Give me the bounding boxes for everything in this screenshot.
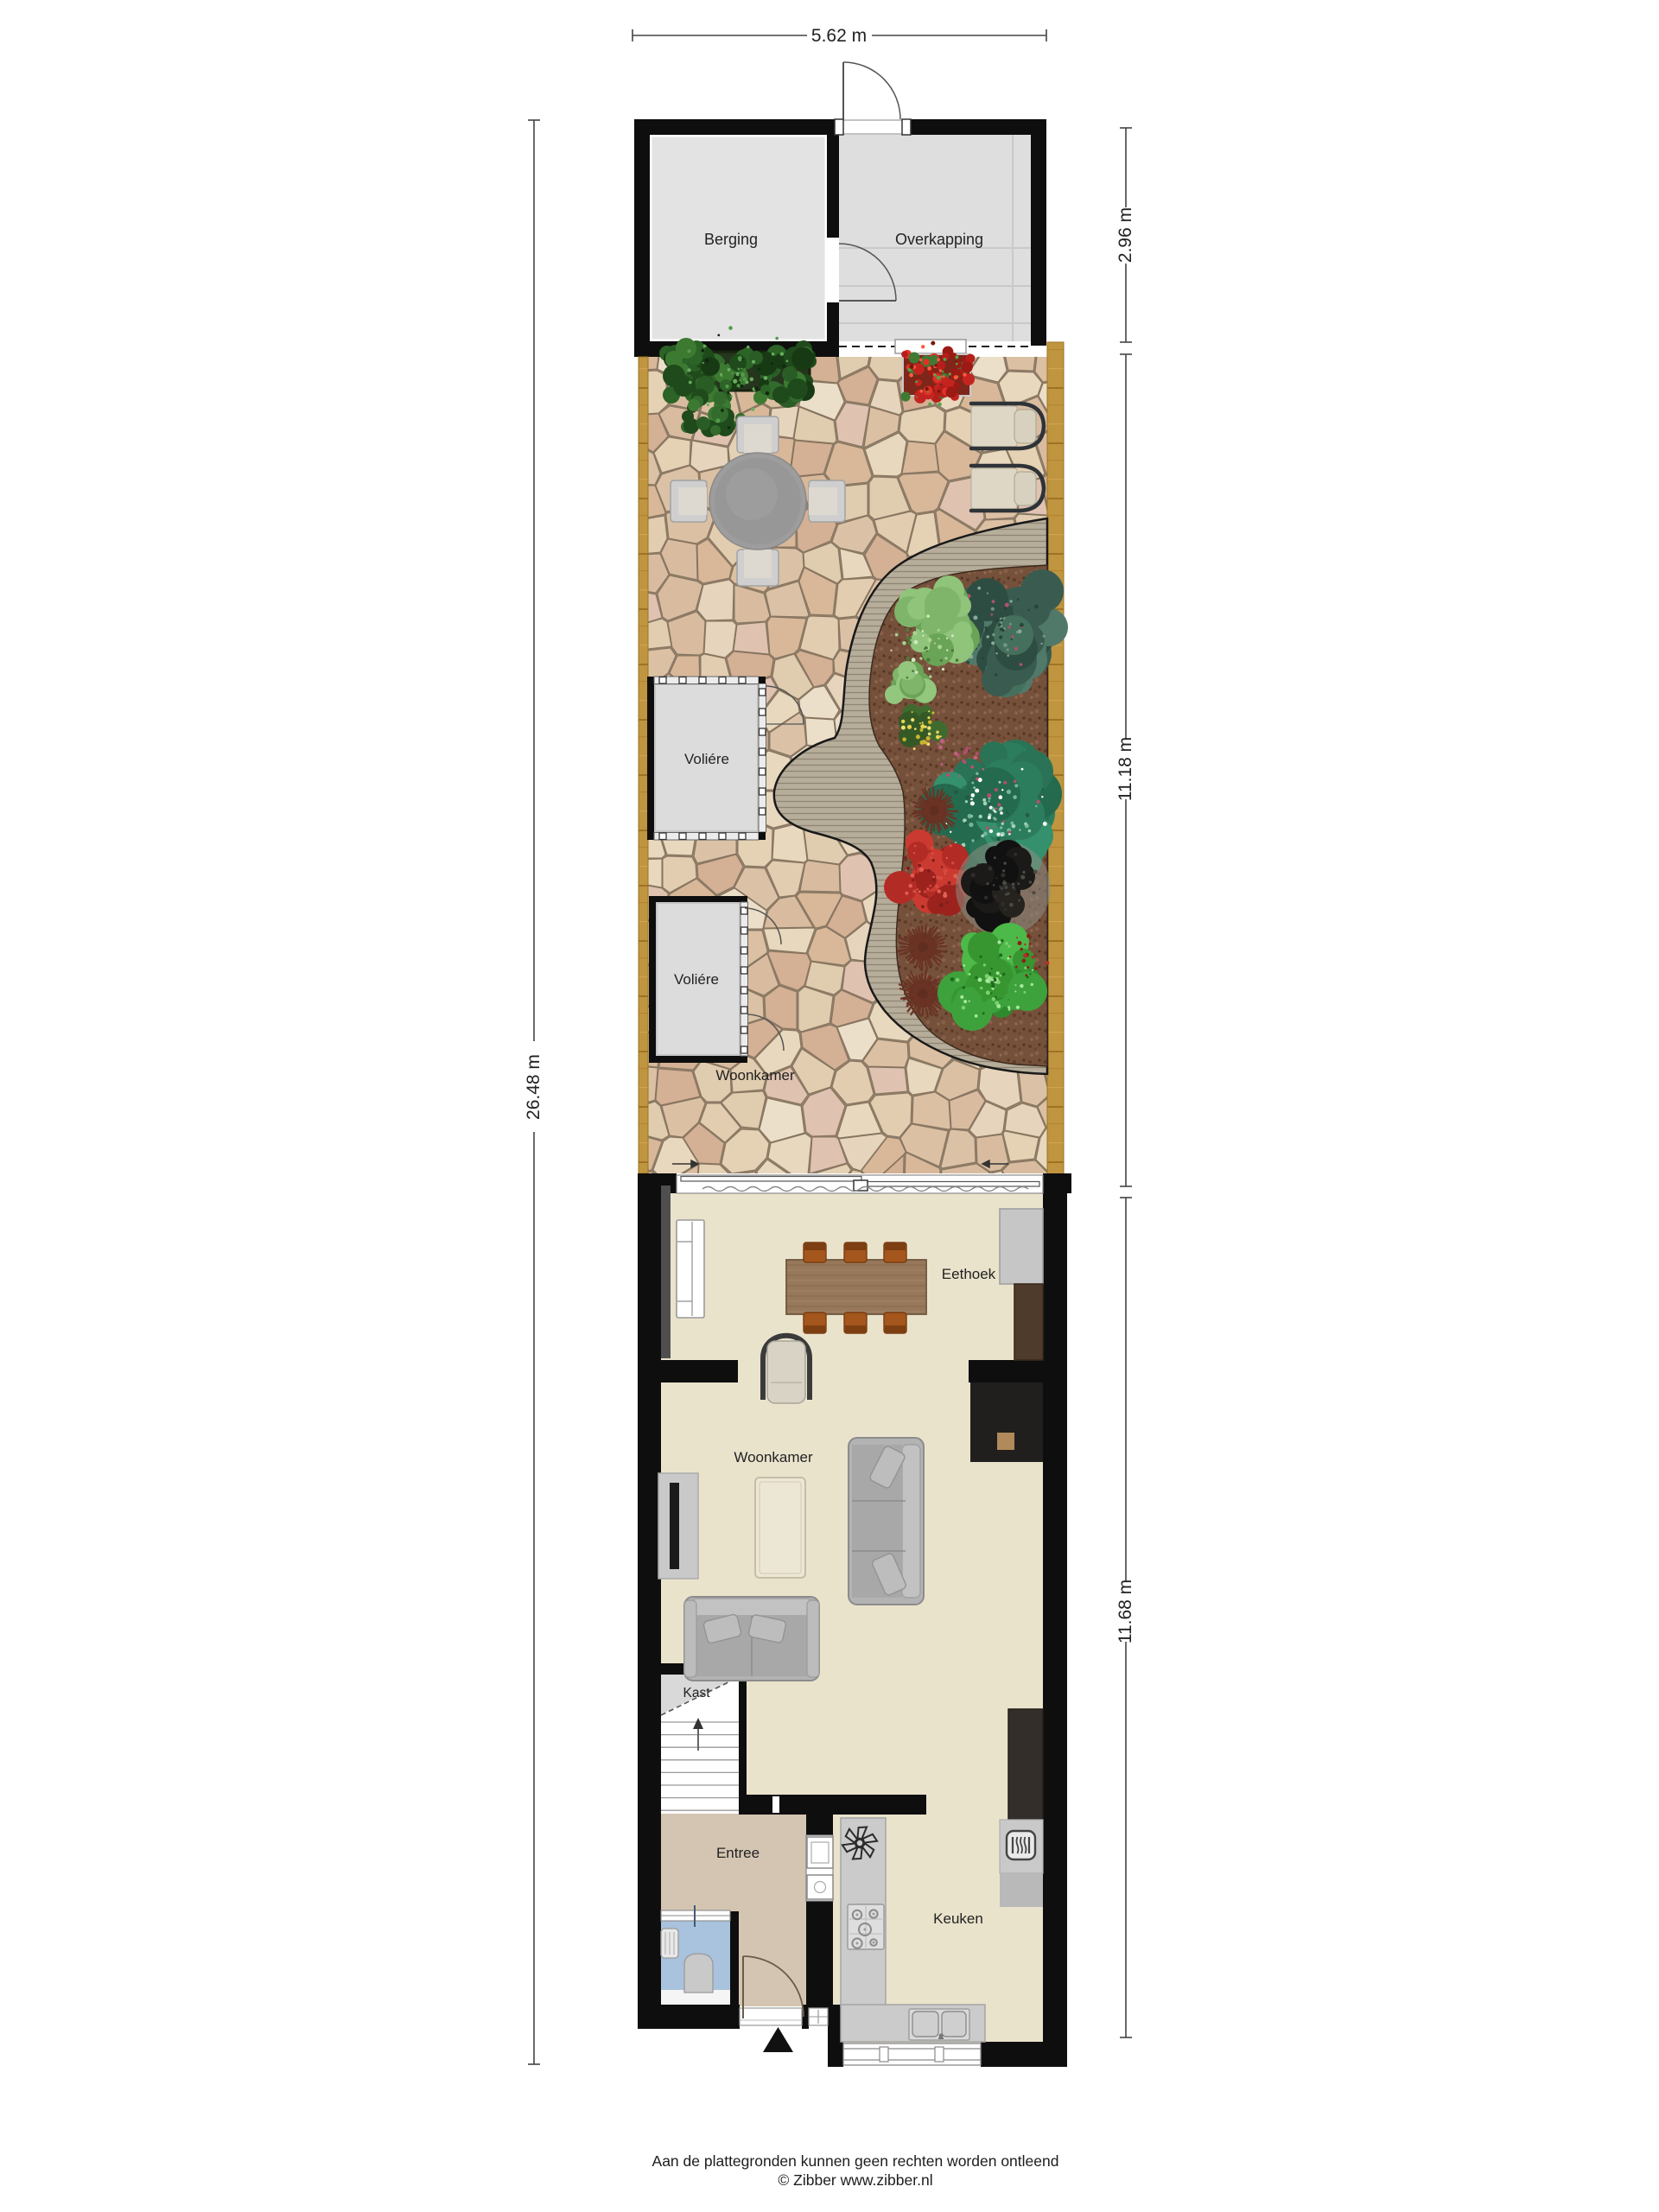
svg-text:Voliére: Voliére: [684, 751, 729, 767]
svg-text:Berging: Berging: [704, 231, 758, 248]
svg-text:© Zibber www.zibber.nl: © Zibber www.zibber.nl: [778, 2171, 932, 2189]
svg-text:Woonkamer: Woonkamer: [715, 1067, 795, 1084]
svg-text:Keuken: Keuken: [933, 1910, 983, 1927]
svg-text:Kast: Kast: [683, 1686, 710, 1700]
svg-text:Eethoek: Eethoek: [942, 1266, 996, 1282]
svg-text:Woonkamer: Woonkamer: [734, 1449, 813, 1465]
svg-text:11.18 m: 11.18 m: [1116, 737, 1135, 801]
svg-text:Entree: Entree: [716, 1845, 760, 1861]
svg-text:26.48 m: 26.48 m: [524, 1054, 543, 1120]
svg-text:5.62 m: 5.62 m: [811, 26, 867, 46]
svg-text:Aan de plattegronden kunnen ge: Aan de plattegronden kunnen geen rechten…: [652, 2152, 1059, 2170]
svg-text:11.68 m: 11.68 m: [1116, 1580, 1135, 1643]
svg-text:Voliére: Voliére: [674, 971, 719, 988]
svg-text:2.96 m: 2.96 m: [1116, 207, 1135, 263]
svg-text:Overkapping: Overkapping: [895, 231, 983, 248]
